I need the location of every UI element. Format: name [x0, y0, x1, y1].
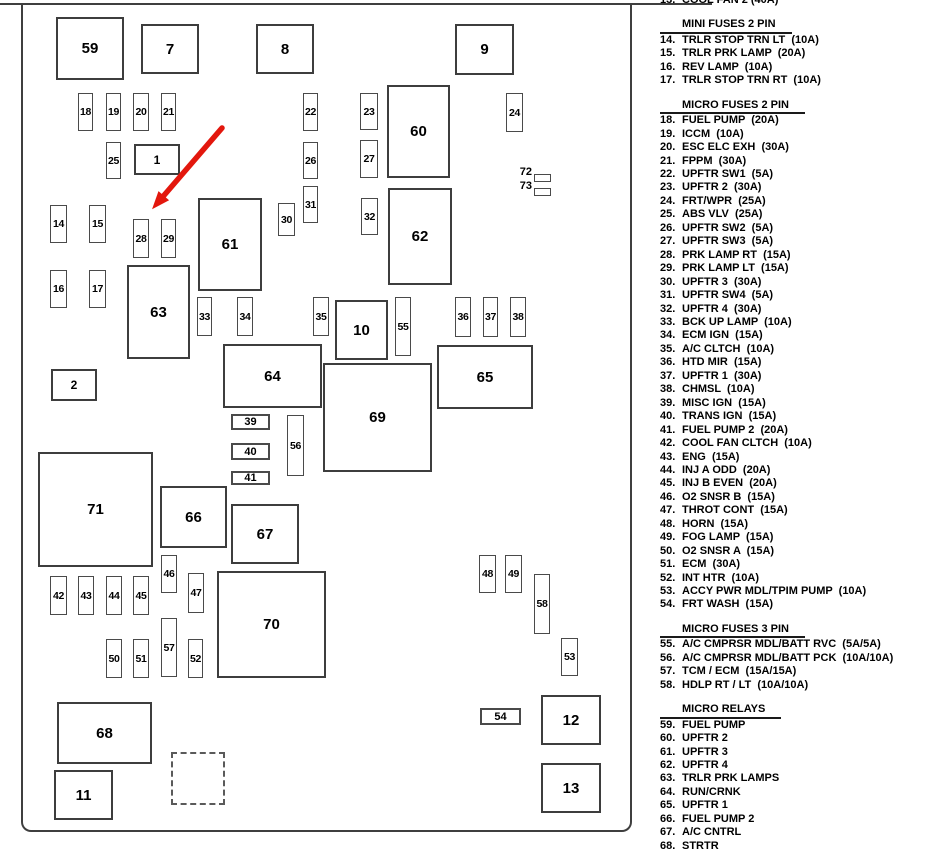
legend-item-label: UPFTR 3 (30A)	[682, 276, 932, 289]
legend-item-label: ICCM (10A)	[682, 128, 932, 141]
legend-item-label: STRTR	[682, 840, 932, 850]
slot-number: 12	[563, 712, 580, 729]
legend-item: 38.CHMSL (10A)	[660, 383, 932, 396]
legend-item: 33.BCK UP LAMP (10A)	[660, 316, 932, 329]
legend-item-number: 19.	[660, 128, 682, 141]
slot-number: 31	[305, 199, 316, 211]
slot-number: 10	[353, 322, 370, 339]
legend-item-number: 62.	[660, 759, 682, 772]
legend-item: 66.FUEL PUMP 2	[660, 813, 932, 826]
legend-item-number: 14.	[660, 34, 682, 47]
legend-item: 67.A/C CNTRL	[660, 826, 932, 839]
legend-item-label: ECM (30A)	[682, 558, 932, 571]
legend-item: 56.A/C CMPRSR MDL/BATT PCK (10A/10A)	[660, 652, 932, 665]
fuse-slot-42: 42	[50, 576, 67, 615]
fuse-slot-41: 41	[231, 471, 270, 485]
legend-item-label: UPFTR 2	[682, 732, 932, 745]
slot-number: 69	[369, 409, 386, 426]
legend-item: 29.PRK LAMP LT (15A)	[660, 262, 932, 275]
slot-number: 25	[108, 155, 119, 167]
legend-item-number: 47.	[660, 504, 682, 517]
legend-item-label: BCK UP LAMP (10A)	[682, 316, 932, 329]
legend-item: 46.O2 SNSR B (15A)	[660, 491, 932, 504]
legend-item-number: 13.	[660, 0, 682, 7]
legend-item-label: UPFTR SW4 (5A)	[682, 289, 932, 302]
slot-number: 70	[263, 616, 280, 633]
legend-item-number: 28.	[660, 249, 682, 262]
fuse-slot-19: 19	[106, 93, 121, 131]
legend-item-label: FUEL PUMP (20A)	[682, 114, 932, 127]
legend-item: 54.FRT WASH (15A)	[660, 598, 932, 611]
legend-item: 36.HTD MIR (15A)	[660, 356, 932, 369]
slot-number: 16	[53, 283, 64, 295]
fuse-slot-23: 23	[360, 93, 378, 130]
legend-item-number: 31.	[660, 289, 682, 302]
legend-item-label: A/C CMPRSR MDL/BATT PCK (10A/10A)	[682, 652, 932, 665]
relay-box-69: 69	[323, 363, 432, 472]
legend-item-number: 27.	[660, 235, 682, 248]
legend-item: 20.ESC ELC EXH (30A)	[660, 141, 932, 154]
legend-item: 22.UPFTR SW1 (5A)	[660, 168, 932, 181]
slot-number: 59	[82, 40, 99, 57]
legend-item-number: 55.	[660, 638, 682, 651]
slot-number: 60	[410, 123, 427, 140]
relay-box-9: 9	[455, 24, 514, 75]
slot-number: 55	[397, 321, 408, 333]
legend-item-number: 30.	[660, 276, 682, 289]
relay-box-7: 7	[141, 24, 199, 74]
slot-number: 17	[92, 283, 103, 295]
legend-item: 25.ABS VLV (25A)	[660, 208, 932, 221]
legend-item: 51.ECM (30A)	[660, 558, 932, 571]
fuse-slot-24: 24	[506, 93, 523, 132]
slot-number: 61	[222, 236, 239, 253]
legend-item: 53.ACCY PWR MDL/TPIM PUMP (10A)	[660, 585, 932, 598]
legend-item-label: MISC IGN (15A)	[682, 397, 932, 410]
legend-item-number: 43.	[660, 451, 682, 464]
legend-item-number: 18.	[660, 114, 682, 127]
relay-box-67: 67	[231, 504, 299, 564]
fuse-slot-50: 50	[106, 639, 122, 678]
legend-item: 43.ENG (15A)	[660, 451, 932, 464]
legend-item: 27.UPFTR SW3 (5A)	[660, 235, 932, 248]
fuse-slot-31: 31	[303, 186, 318, 223]
slot-number: 43	[80, 590, 91, 602]
legend-item: 55.A/C CMPRSR MDL/BATT RVC (5A/5A)	[660, 638, 932, 651]
legend-item-number: 64.	[660, 786, 682, 799]
relay-box-64: 64	[223, 344, 322, 408]
slot-number: 67	[257, 526, 274, 543]
legend-item-label: ECM IGN (15A)	[682, 329, 932, 342]
slot-number: 50	[108, 653, 119, 665]
slot-number: 38	[512, 311, 523, 323]
legend-item: 45.INJ B EVEN (20A)	[660, 477, 932, 490]
legend-item: 24.FRT/WPR (25A)	[660, 195, 932, 208]
legend-section-header: MINI FUSES 2 PIN	[660, 18, 792, 33]
legend-item-label: TRLR PRK LAMP (20A)	[682, 47, 932, 60]
legend-item-number: 32.	[660, 303, 682, 316]
legend-item-label: UPFTR 1	[682, 799, 932, 812]
fuse-slot-35: 35	[313, 297, 329, 336]
legend-item-label: INJ A ODD (20A)	[682, 464, 932, 477]
slot-number: 24	[509, 107, 520, 119]
fuse-slot-2: 2	[51, 369, 97, 401]
legend-item-label: INT HTR (10A)	[682, 572, 932, 585]
slot-number: 27	[363, 153, 374, 165]
slot-number: 36	[457, 311, 468, 323]
legend-item-label: UPFTR SW2 (5A)	[682, 222, 932, 235]
legend-item-label: FUEL PUMP 2	[682, 813, 932, 826]
legend-item-number: 23.	[660, 181, 682, 194]
legend-item-number: 46.	[660, 491, 682, 504]
slot-number: 63	[150, 304, 167, 321]
slot-number: 35	[315, 311, 326, 323]
legend-item-number: 58.	[660, 679, 682, 692]
legend-item-number: 50.	[660, 545, 682, 558]
legend-item-number: 16.	[660, 61, 682, 74]
legend-item-label: FUEL PUMP 2 (20A)	[682, 424, 932, 437]
legend-item-label: RUN/CRNK	[682, 786, 932, 799]
slot-number: 26	[305, 155, 316, 167]
slot-number: 11	[76, 787, 92, 804]
legend-item-number: 48.	[660, 518, 682, 531]
fuse-slot-34: 34	[237, 297, 253, 336]
indicator-rect-73	[534, 188, 551, 196]
fuse-slot-18: 18	[78, 93, 93, 131]
legend-item-number: 39.	[660, 397, 682, 410]
relay-box-59: 59	[56, 17, 124, 80]
legend-item-number: 59.	[660, 719, 682, 732]
legend-item-label: TRLR STOP TRN LT (10A)	[682, 34, 932, 47]
legend-item-label: ACCY PWR MDL/TPIM PUMP (10A)	[682, 585, 932, 598]
fuse-slot-58: 58	[534, 574, 550, 634]
legend-section-header: MICRO FUSES 2 PIN	[660, 99, 805, 114]
legend-item-number: 60.	[660, 732, 682, 745]
fuse-legend: 13.COOL FAN 2 (40A)MINI FUSES 2 PIN14.TR…	[660, 0, 932, 850]
legend-item-label: INJ B EVEN (20A)	[682, 477, 932, 490]
slot-number: 65	[477, 369, 494, 386]
legend-item: 16.REV LAMP (10A)	[660, 61, 932, 74]
legend-item: 28.PRK LAMP RT (15A)	[660, 249, 932, 262]
legend-item-number: 53.	[660, 585, 682, 598]
fuse-slot-53: 53	[561, 638, 578, 676]
fuse-slot-47: 47	[188, 573, 204, 613]
slot-number: 66	[185, 509, 202, 526]
legend-item-label: A/C CMPRSR MDL/BATT RVC (5A/5A)	[682, 638, 932, 651]
fuse-slot-51: 51	[133, 639, 149, 678]
slot-number: 53	[564, 651, 575, 663]
legend-item: 35.A/C CLTCH (10A)	[660, 343, 932, 356]
legend-item-number: 34.	[660, 329, 682, 342]
legend-item-label: UPFTR SW3 (5A)	[682, 235, 932, 248]
legend-item-number: 29.	[660, 262, 682, 275]
slot-number: 56	[290, 440, 301, 452]
legend-item: 32.UPFTR 4 (30A)	[660, 303, 932, 316]
slot-number: 32	[364, 211, 375, 223]
fuse-slot-39: 39	[231, 414, 270, 430]
legend-item: 41.FUEL PUMP 2 (20A)	[660, 424, 932, 437]
legend-item: 58.HDLP RT / LT (10A/10A)	[660, 679, 932, 692]
legend-item: 18.FUEL PUMP (20A)	[660, 114, 932, 127]
legend-item-label: ENG (15A)	[682, 451, 932, 464]
legend-item-label: UPFTR SW1 (5A)	[682, 168, 932, 181]
slot-number: 52	[190, 653, 201, 665]
legend-item: 14.TRLR STOP TRN LT (10A)	[660, 34, 932, 47]
fuse-slot-40: 40	[231, 443, 270, 460]
legend-item-number: 15.	[660, 47, 682, 60]
legend-item-label: TRLR PRK LAMPS	[682, 772, 932, 785]
slot-number: 14	[53, 218, 64, 230]
slot-number: 13	[563, 780, 580, 797]
legend-item-number: 51.	[660, 558, 682, 571]
slot-number: 68	[96, 725, 113, 742]
legend-item-number: 57.	[660, 665, 682, 678]
legend-item: 26.UPFTR SW2 (5A)	[660, 222, 932, 235]
slot-number: 51	[135, 653, 146, 665]
legend-item-number: 26.	[660, 222, 682, 235]
fuse-slot-37: 37	[483, 297, 498, 337]
legend-item-number: 63.	[660, 772, 682, 785]
relay-box-66: 66	[160, 486, 227, 548]
legend-item-label: ESC ELC EXH (30A)	[682, 141, 932, 154]
legend-item-label: REV LAMP (10A)	[682, 61, 932, 74]
legend-item: 19.ICCM (10A)	[660, 128, 932, 141]
relay-box-63: 63	[127, 265, 190, 359]
fuse-slot-27: 27	[360, 140, 378, 178]
fuse-slot-15: 15	[89, 205, 106, 243]
legend-item: 13.COOL FAN 2 (40A)	[660, 0, 932, 7]
legend-item: 23.UPFTR 2 (30A)	[660, 181, 932, 194]
legend-item: 21.FPPM (30A)	[660, 155, 932, 168]
relay-box-68: 68	[57, 702, 152, 764]
slot-number: 15	[92, 218, 103, 230]
legend-item-label: HORN (15A)	[682, 518, 932, 531]
legend-item-label: A/C CNTRL	[682, 826, 932, 839]
legend-item-label: UPFTR 4	[682, 759, 932, 772]
legend-item-label: HTD MIR (15A)	[682, 356, 932, 369]
legend-item-label: FUEL PUMP	[682, 719, 932, 732]
legend-item: 48.HORN (15A)	[660, 518, 932, 531]
fuse-slot-56: 56	[287, 415, 304, 476]
slot-number: 9	[480, 41, 488, 58]
fuse-slot-30: 30	[278, 203, 295, 236]
relay-box-8: 8	[256, 24, 314, 74]
legend-item-number: 37.	[660, 370, 682, 383]
relay-box-71: 71	[38, 452, 153, 567]
indicator-label-73: 73	[504, 180, 532, 192]
slot-number: 58	[536, 598, 547, 610]
slot-number: 41	[244, 472, 256, 484]
slot-number: 39	[244, 416, 256, 428]
slot-number: 30	[281, 214, 292, 226]
legend-item-number: 67.	[660, 826, 682, 839]
legend-item-number: 20.	[660, 141, 682, 154]
slot-number: 33	[199, 311, 210, 323]
slot-number: 19	[108, 106, 119, 118]
legend-item-number: 41.	[660, 424, 682, 437]
fuse-slot-22: 22	[303, 93, 318, 131]
legend-item-number: 66.	[660, 813, 682, 826]
legend-item-number: 61.	[660, 746, 682, 759]
legend-item-label: CHMSL (10A)	[682, 383, 932, 396]
legend-item-label: COOL FAN 2 (40A)	[682, 0, 932, 7]
legend-item-label: ABS VLV (25A)	[682, 208, 932, 221]
relay-box-12: 12	[541, 695, 601, 745]
legend-item-label: UPFTR 4 (30A)	[682, 303, 932, 316]
legend-item-number: 25.	[660, 208, 682, 221]
legend-item-label: TRLR STOP TRN RT (10A)	[682, 74, 932, 87]
legend-item-label: PRK LAMP LT (15A)	[682, 262, 932, 275]
slot-number: 18	[80, 106, 91, 118]
slot-number: 49	[508, 568, 519, 580]
slot-number: 8	[281, 41, 289, 58]
legend-item-number: 52.	[660, 572, 682, 585]
slot-number: 64	[264, 368, 281, 385]
legend-item-number: 24.	[660, 195, 682, 208]
legend-item: 15.TRLR PRK LAMP (20A)	[660, 47, 932, 60]
slot-number: 62	[412, 228, 429, 245]
legend-item-number: 33.	[660, 316, 682, 329]
legend-item: 62.UPFTR 4	[660, 759, 932, 772]
relay-box-10: 10	[335, 300, 388, 360]
legend-item-label: FRT WASH (15A)	[682, 598, 932, 611]
legend-item-label: COOL FAN CLTCH (10A)	[682, 437, 932, 450]
legend-item-label: UPFTR 1 (30A)	[682, 370, 932, 383]
legend-item-label: UPFTR 3	[682, 746, 932, 759]
fuse-slot-36: 36	[455, 297, 471, 337]
legend-item: 49.FOG LAMP (15A)	[660, 531, 932, 544]
relay-box-13: 13	[541, 763, 601, 813]
slot-number: 2	[71, 378, 78, 392]
legend-item-number: 44.	[660, 464, 682, 477]
fuse-slot-17: 17	[89, 270, 106, 308]
legend-item: 31.UPFTR SW4 (5A)	[660, 289, 932, 302]
legend-item-label: FPPM (30A)	[682, 155, 932, 168]
relay-box-70: 70	[217, 571, 326, 678]
slot-number: 34	[239, 311, 250, 323]
fuse-slot-43: 43	[78, 576, 94, 615]
indicator-label-72: 72	[504, 166, 532, 178]
legend-item: 57.TCM / ECM (15A/15A)	[660, 665, 932, 678]
legend-item: 61.UPFTR 3	[660, 746, 932, 759]
legend-item-number: 38.	[660, 383, 682, 396]
legend-item-label: O2 SNSR B (15A)	[682, 491, 932, 504]
fuse-slot-55: 55	[395, 297, 411, 356]
fuse-slot-46: 46	[161, 555, 177, 593]
legend-item: 68.STRTR	[660, 840, 932, 850]
fuse-slot-33: 33	[197, 297, 212, 336]
fuse-slot-44: 44	[106, 576, 122, 615]
legend-item-label: O2 SNSR A (15A)	[682, 545, 932, 558]
legend-item: 52.INT HTR (10A)	[660, 572, 932, 585]
legend-item-number: 21.	[660, 155, 682, 168]
legend-item-label: FOG LAMP (15A)	[682, 531, 932, 544]
legend-item: 42.COOL FAN CLTCH (10A)	[660, 437, 932, 450]
legend-item-number: 56.	[660, 652, 682, 665]
legend-item: 50.O2 SNSR A (15A)	[660, 545, 932, 558]
legend-item-label: TRANS IGN (15A)	[682, 410, 932, 423]
legend-item: 40.TRANS IGN (15A)	[660, 410, 932, 423]
legend-item-label: A/C CLTCH (10A)	[682, 343, 932, 356]
slot-number: 37	[485, 311, 496, 323]
legend-item: 30.UPFTR 3 (30A)	[660, 276, 932, 289]
legend-item: 65.UPFTR 1	[660, 799, 932, 812]
legend-item-number: 45.	[660, 477, 682, 490]
legend-item-number: 42.	[660, 437, 682, 450]
legend-item: 47.THROT CONT (15A)	[660, 504, 932, 517]
fuse-box-diagram-page: 5978960626163106465697166677068111213123…	[0, 0, 935, 850]
relay-box-60: 60	[387, 85, 450, 178]
legend-item: 37.UPFTR 1 (30A)	[660, 370, 932, 383]
legend-item: 34.ECM IGN (15A)	[660, 329, 932, 342]
fuse-slot-52: 52	[188, 639, 203, 678]
legend-item-number: 35.	[660, 343, 682, 356]
slot-number: 45	[135, 590, 146, 602]
legend-item-number: 22.	[660, 168, 682, 181]
legend-item-label: HDLP RT / LT (10A/10A)	[682, 679, 932, 692]
slot-number: 7	[166, 41, 174, 58]
slot-number: 71	[87, 501, 104, 518]
slot-number: 40	[244, 446, 256, 458]
slot-number: 42	[53, 590, 64, 602]
red-arrow	[130, 112, 245, 227]
fuse-slot-38: 38	[510, 297, 526, 337]
legend-item-number: 49.	[660, 531, 682, 544]
legend-item-number: 36.	[660, 356, 682, 369]
slot-number: 28	[135, 233, 146, 245]
slot-number: 54	[494, 711, 506, 723]
legend-item-label: TCM / ECM (15A/15A)	[682, 665, 932, 678]
slot-number: 44	[108, 590, 119, 602]
legend-item: 17.TRLR STOP TRN RT (10A)	[660, 74, 932, 87]
legend-item-label: UPFTR 2 (30A)	[682, 181, 932, 194]
relay-box-11: 11	[54, 770, 113, 820]
legend-item: 39.MISC IGN (15A)	[660, 397, 932, 410]
legend-item-number: 65.	[660, 799, 682, 812]
fuse-slot-16: 16	[50, 270, 67, 308]
legend-item-number: 68.	[660, 840, 682, 850]
fuse-slot-14: 14	[50, 205, 67, 243]
slot-number: 29	[163, 233, 174, 245]
fuse-slot-25: 25	[106, 142, 121, 179]
fuse-slot-26: 26	[303, 142, 318, 179]
legend-item-number: 17.	[660, 74, 682, 87]
fuse-slot-32: 32	[361, 198, 378, 235]
slot-number: 23	[363, 106, 374, 118]
legend-item-label: FRT/WPR (25A)	[682, 195, 932, 208]
slot-number: 47	[190, 587, 201, 599]
slot-number: 46	[163, 568, 174, 580]
slot-number: 48	[482, 568, 493, 580]
legend-section-header: MICRO RELAYS	[660, 703, 781, 718]
legend-item-number: 40.	[660, 410, 682, 423]
legend-item-label: PRK LAMP RT (15A)	[682, 249, 932, 262]
fuse-slot-54: 54	[480, 708, 521, 725]
legend-item: 44.INJ A ODD (20A)	[660, 464, 932, 477]
legend-item: 60.UPFTR 2	[660, 732, 932, 745]
fuse-slot-57: 57	[161, 618, 177, 677]
slot-number: 22	[305, 106, 316, 118]
fuse-slot-45: 45	[133, 576, 149, 615]
fuse-slot-49: 49	[505, 555, 522, 593]
legend-section-header: MICRO FUSES 3 PIN	[660, 623, 805, 638]
relay-box-65: 65	[437, 345, 533, 409]
relay-box-62: 62	[388, 188, 452, 285]
slot-number: 57	[163, 642, 174, 654]
legend-item-label: THROT CONT (15A)	[682, 504, 932, 517]
indicator-rect-72	[534, 174, 551, 182]
legend-item-number: 54.	[660, 598, 682, 611]
